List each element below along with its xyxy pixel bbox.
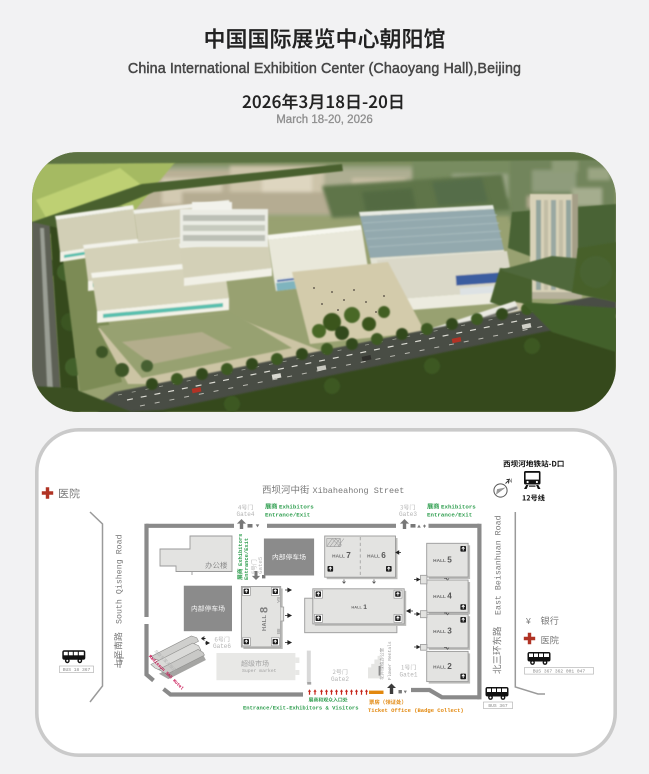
svg-text:6: 6 (381, 551, 386, 560)
svg-text:Entrance/Exit: Entrance/Exit (244, 538, 250, 580)
svg-text:Gate1: Gate1 (400, 672, 418, 679)
svg-text:BUS 18 367: BUS 18 367 (63, 667, 91, 673)
svg-text:Gate6: Gate6 (213, 643, 231, 650)
svg-text:2: 2 (447, 662, 452, 671)
svg-text:HALL: HALL (433, 594, 446, 599)
svg-text:HALL: HALL (351, 606, 362, 610)
svg-text:3: 3 (447, 627, 452, 636)
svg-text:Entrance/Exit: Entrance/Exit (265, 512, 310, 519)
svg-text:Gate4: Gate4 (237, 511, 255, 518)
svg-text:Gate2: Gate2 (331, 676, 349, 683)
svg-text:BUS 367: BUS 367 (488, 703, 508, 709)
svg-text:1: 1 (363, 604, 367, 611)
svg-text:5: 5 (447, 556, 452, 565)
svg-text:8B: 8B (275, 629, 281, 635)
svg-text:4: 4 (447, 592, 452, 601)
svg-text:Exhibitors: Exhibitors (279, 504, 314, 511)
svg-text:¥: ¥ (525, 616, 531, 626)
svg-text:Flower Rentals: Flower Rentals (387, 641, 393, 680)
svg-text:HALL: HALL (332, 554, 345, 559)
svg-text:Ticket Office (Badge Collect): Ticket Office (Badge Collect) (368, 707, 464, 714)
svg-text:BUS 367 362 001 047: BUS 367 362 001 047 (533, 669, 586, 675)
svg-text:N: N (509, 479, 513, 485)
svg-text:7: 7 (346, 551, 351, 560)
svg-text:HALL: HALL (262, 614, 268, 631)
svg-text:East Beisanhuan Road: East Beisanhuan Road (494, 515, 504, 615)
svg-text:Super market: Super market (242, 668, 277, 674)
svg-text:Entrance/Exit-Exhibitors & Vis: Entrance/Exit-Exhibitors & Visitors (243, 705, 359, 712)
svg-text:Xibaheahong Street: Xibaheahong Street (313, 486, 405, 496)
svg-text:Entrance/Exit: Entrance/Exit (427, 512, 472, 519)
svg-text:8: 8 (259, 607, 271, 613)
svg-text:Gate3: Gate3 (399, 511, 417, 518)
svg-text:HALL: HALL (433, 629, 446, 634)
svg-text:HALL: HALL (367, 554, 380, 559)
svg-text:Gate5: Gate5 (257, 556, 264, 574)
svg-text:HALL: HALL (433, 665, 446, 670)
svg-text:Exhibitors: Exhibitors (441, 504, 476, 511)
svg-text:8A: 8A (275, 597, 281, 604)
svg-text:South Qisheng Road: South Qisheng Road (115, 534, 125, 624)
svg-text:HALL: HALL (433, 558, 446, 563)
